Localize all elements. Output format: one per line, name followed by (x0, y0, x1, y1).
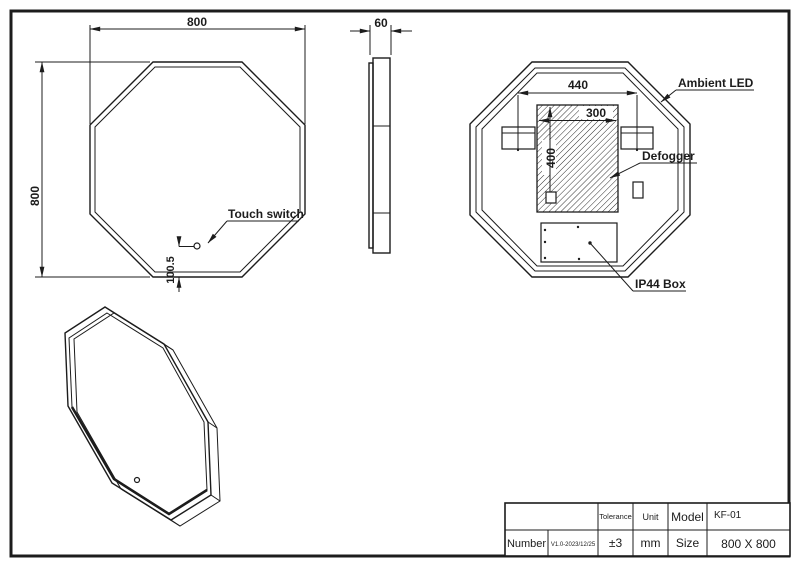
ambient-led-callout: Ambient LED (661, 76, 754, 102)
screw-dot (544, 229, 546, 231)
dim-mount-span-value: 440 (568, 78, 588, 92)
dim-front-width-value: 800 (187, 15, 207, 29)
center-dot (636, 149, 638, 151)
model-label: Model (671, 510, 704, 524)
front-octagon-inner (95, 67, 300, 272)
dim-defogger-height-value: 400 (544, 148, 558, 168)
size-label: Size (676, 536, 700, 550)
leader-dot (588, 241, 591, 244)
tolerance-value: ±3 (609, 536, 623, 550)
side-view: 60 (350, 16, 412, 253)
ambient-led-label: Ambient LED (678, 76, 754, 90)
dim-front-width: 800 (90, 15, 305, 124)
switch-slot (633, 182, 643, 198)
ip44-body (541, 223, 617, 262)
technical-drawing-canvas: 800 800 Touch switch 100.5 (0, 0, 800, 565)
sensor-box (546, 192, 556, 203)
back-view: 440 300 400 Ambient LED (470, 62, 754, 291)
leader-line (661, 90, 676, 102)
iso-frame-inner-line (69, 313, 207, 514)
leader-line (208, 221, 227, 243)
screw-dot (578, 258, 580, 260)
ip44-box (541, 223, 617, 262)
dim-defogger-width-value: 300 (586, 106, 606, 120)
title-block: Tolerance Unit Model KF-01 Number V1.0-2… (505, 503, 790, 556)
iso-depth-edge (171, 520, 180, 526)
unit-value: mm (641, 536, 661, 550)
front-view: 800 800 Touch switch 100.5 (28, 15, 305, 292)
screw-dot (577, 226, 579, 228)
iso-depth-edge (211, 495, 220, 501)
size-value: 800 X 800 (721, 537, 776, 551)
defogger-label: Defogger (642, 149, 695, 163)
screw-dot (544, 241, 546, 243)
touch-switch-callout: Touch switch (208, 207, 304, 243)
dim-touch-offset: 100.5 (165, 240, 194, 292)
unit-label: Unit (642, 512, 659, 522)
isometric-view (65, 307, 220, 526)
iso-front-face (65, 307, 211, 520)
ip44-label: IP44 Box (635, 277, 686, 291)
side-mirror-body (373, 58, 390, 253)
dim-front-height-value: 800 (28, 186, 42, 206)
dim-front-height: 800 (28, 62, 150, 277)
dim-touch-offset-value: 100.5 (165, 256, 177, 284)
tolerance-label: Tolerance (599, 512, 632, 521)
number-label: Number (507, 538, 546, 550)
touch-switch-dot (194, 243, 200, 249)
model-value: KF-01 (714, 510, 742, 521)
iso-frame-shadow-edge (72, 407, 207, 514)
touch-switch-label: Touch switch (228, 207, 304, 221)
dim-depth-value: 60 (374, 16, 388, 30)
iso-touch-switch-dot (135, 478, 140, 483)
number-value: V1.0-2023/12/25 (551, 542, 596, 548)
iso-back-face (74, 313, 220, 526)
screw-dot (544, 257, 546, 259)
center-dot (517, 149, 519, 151)
dim-depth: 60 (350, 16, 412, 55)
